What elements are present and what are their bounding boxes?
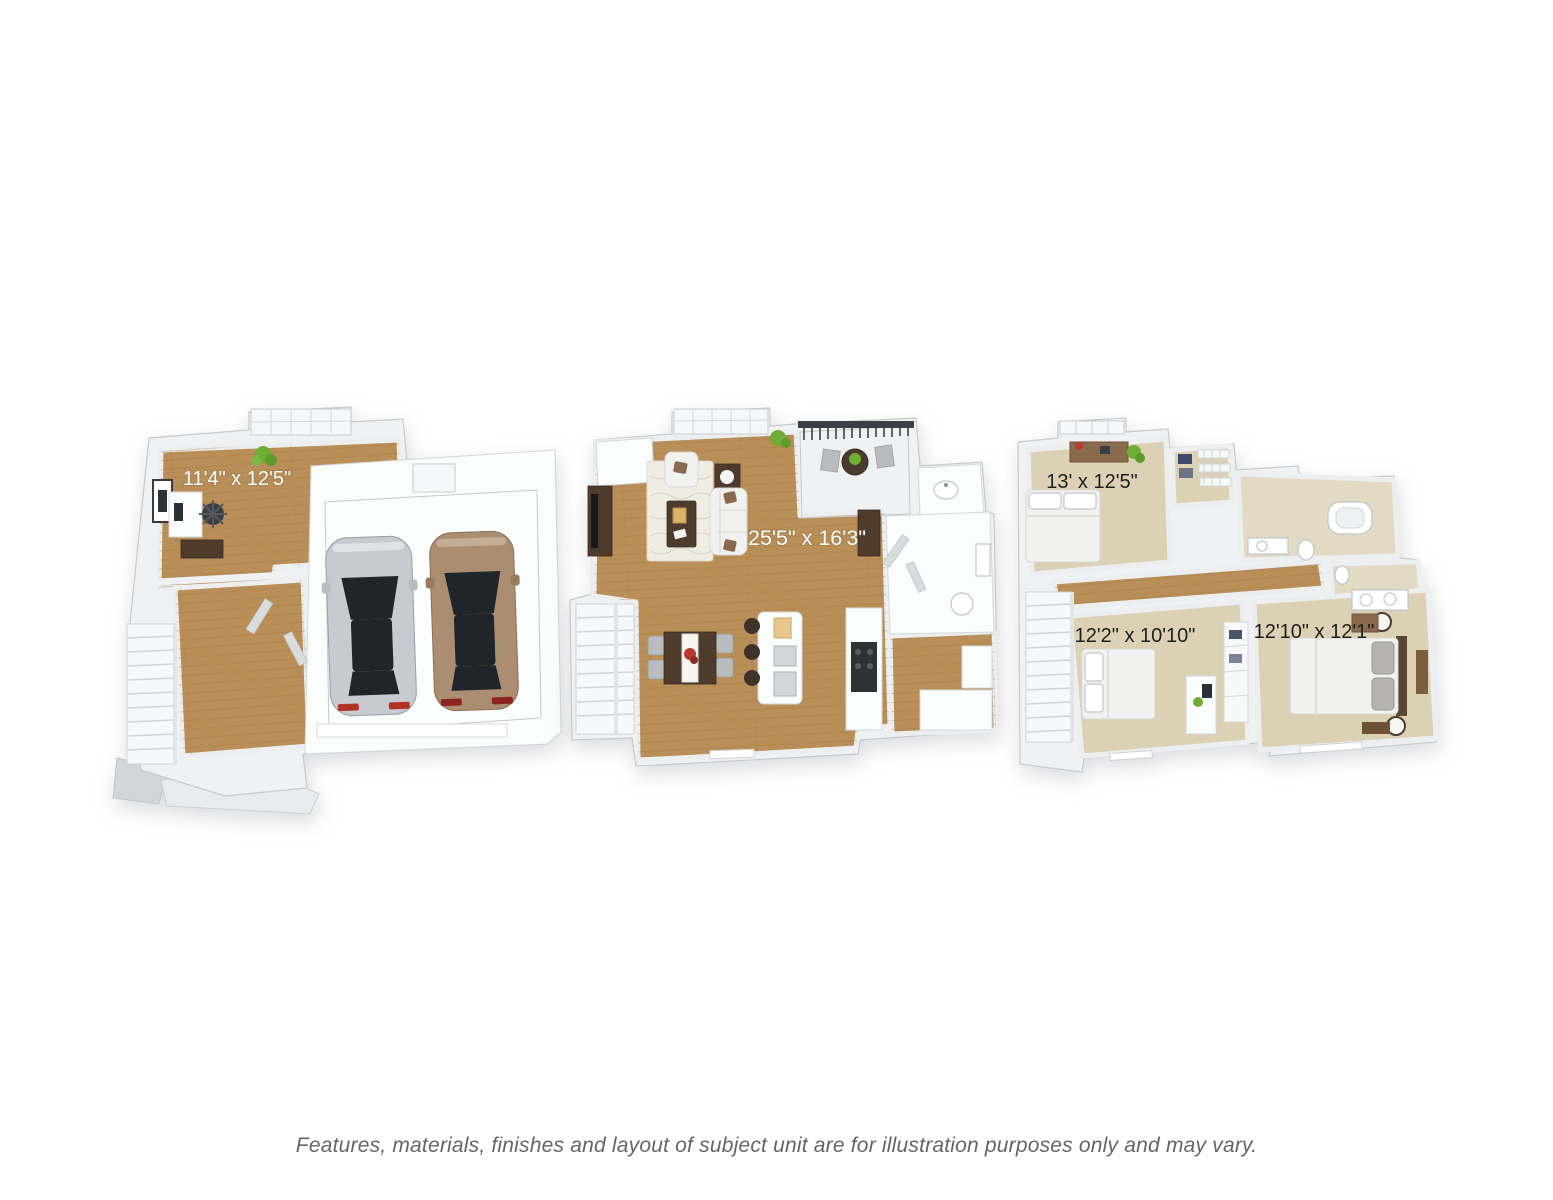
wardrobe [1224, 622, 1248, 722]
toilet [1335, 566, 1349, 584]
desk [1186, 676, 1216, 734]
hanging-clothes [1179, 468, 1193, 478]
staircase [127, 624, 175, 764]
bathroom [883, 512, 994, 634]
dimension-label: 25'5" x 16'3" [748, 526, 866, 550]
entry-hall [175, 580, 309, 756]
patio-chair [875, 445, 895, 468]
staircase [576, 604, 634, 734]
garage-vent [413, 464, 455, 492]
coffee-table [667, 501, 696, 547]
tan-car [424, 530, 524, 711]
hanging-clothes [1178, 454, 1192, 464]
bay-window [251, 409, 351, 435]
bar-stool [744, 618, 760, 634]
toilet [951, 593, 973, 615]
floor-lamp-table [715, 464, 740, 491]
range [851, 642, 877, 692]
office-desk [169, 492, 202, 537]
sofa [710, 488, 747, 555]
desk-monitor [174, 503, 183, 521]
refrigerator [962, 646, 992, 688]
bay-window [674, 409, 768, 434]
vanity [1248, 538, 1288, 554]
credenza [181, 540, 223, 558]
toilet [1298, 540, 1314, 560]
bar-stool [744, 670, 760, 686]
silver-car [320, 535, 422, 716]
lower-cabinets [920, 690, 992, 730]
balcony-railing [798, 421, 914, 428]
garage-door [317, 724, 507, 737]
bed-2 [1082, 649, 1155, 719]
dresser [1070, 442, 1128, 462]
dimension-label: 12'10" x 12'1" [1254, 621, 1375, 643]
office-chair [199, 500, 227, 528]
armchair [665, 452, 698, 487]
staircase [1026, 592, 1072, 742]
stair-opening [596, 438, 654, 486]
floor-plan-garage-level: 11'4" x 12'5" [105, 402, 575, 827]
cutting-board [774, 618, 791, 638]
dimension-label: 13' x 12'5" [1046, 471, 1137, 493]
shelf [976, 544, 990, 576]
dimension-label: 11'4" x 12'5" [183, 468, 291, 490]
bed-3 [1290, 636, 1407, 716]
floor-plan-sheet: 11'4" x 12'5" [0, 0, 1553, 1200]
half-bath [918, 464, 984, 516]
tall-dresser [1416, 650, 1428, 694]
dimension-label: 12'2" x 10'10" [1075, 625, 1196, 647]
floor-plan-bedroom-level: 13' x 12'5" 12'2" x 10'10" 12'10" x 12'1… [1000, 412, 1455, 797]
bed-1 [1026, 490, 1100, 562]
tv-console [588, 486, 612, 556]
floor-plan-main-level: 25'5" x 16'3" [560, 396, 1010, 796]
disclaimer-text: Features, materials, finishes and layout… [0, 1134, 1553, 1158]
bay-window [1060, 421, 1124, 434]
bench [1362, 722, 1390, 734]
bar-stool [744, 644, 760, 660]
patio-chair [821, 449, 841, 472]
patio-plant [849, 453, 861, 465]
window [710, 749, 754, 759]
